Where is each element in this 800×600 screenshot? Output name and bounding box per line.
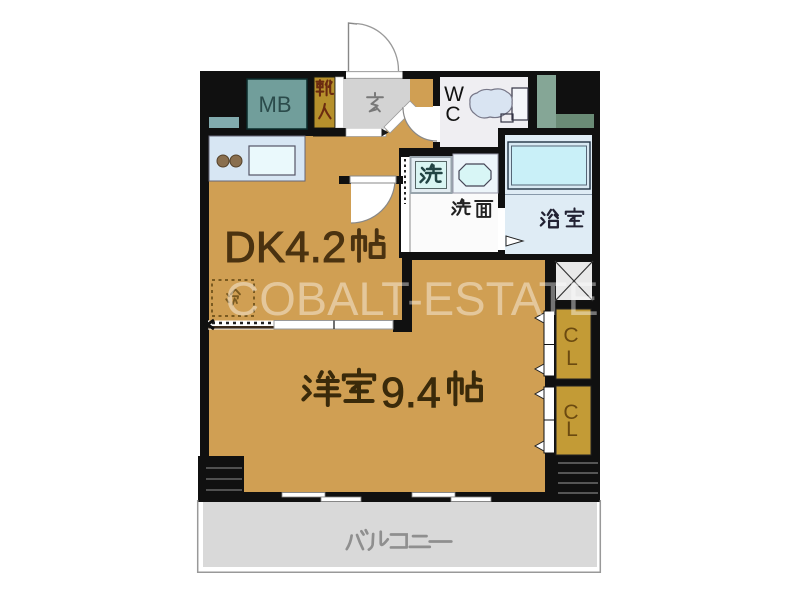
- svg-text:COBALT-ESTATE: COBALT-ESTATE: [225, 272, 598, 325]
- svg-text:L: L: [566, 347, 578, 370]
- svg-text:L: L: [566, 418, 578, 441]
- svg-text:C: C: [445, 103, 460, 126]
- svg-text:9.4: 9.4: [381, 369, 441, 417]
- svg-text:MB: MB: [259, 92, 292, 117]
- svg-text:C: C: [563, 324, 578, 347]
- svg-text:DK4.2: DK4.2: [224, 223, 346, 272]
